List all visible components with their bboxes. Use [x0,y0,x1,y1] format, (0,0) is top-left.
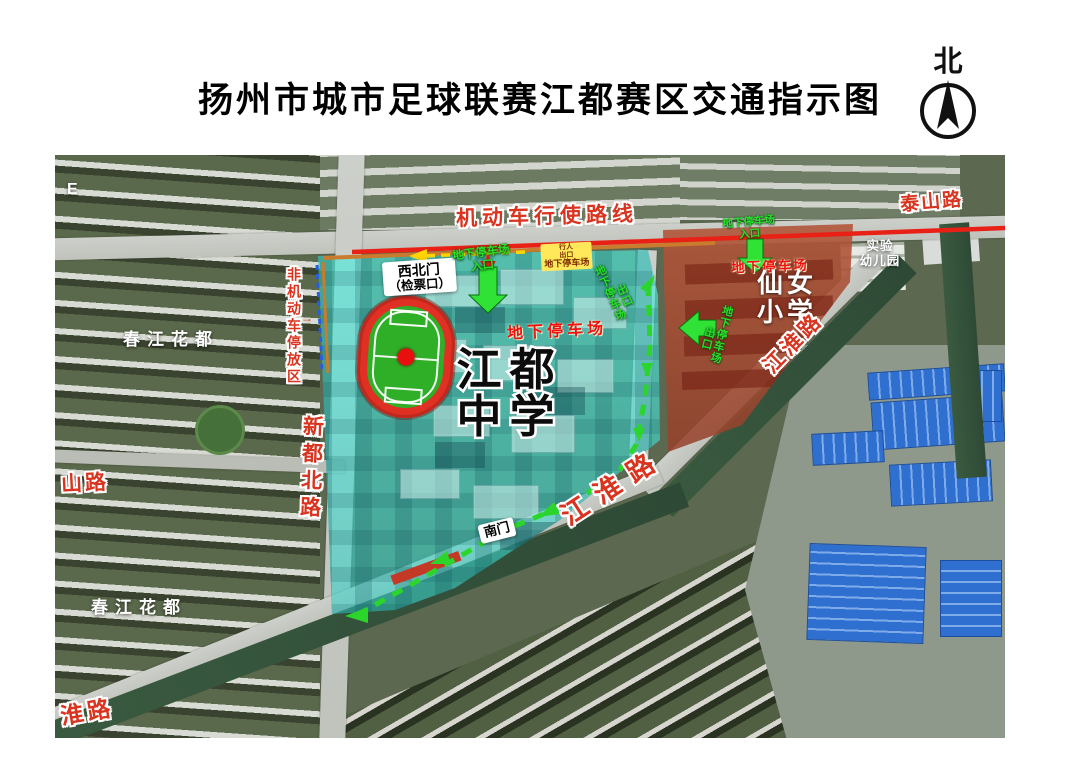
north-label: 北 [908,48,988,77]
chunjiang-label-lower: 春江花都 [91,593,187,618]
compass-icon [915,77,981,143]
kindergarten-line1: 实验 [845,239,915,254]
jiangdu-school-label: 江都 中学 [427,347,592,441]
chunjiang-label-upper: 春江花都 [123,325,219,350]
page: { "title": "扬州市城市足球联赛江都赛区交通指示图", "compas… [0,0,1080,764]
park-circle [195,405,245,455]
road-label-shan-partial: 山路 [60,466,110,498]
campus-building [400,469,460,499]
campus-building [473,485,539,519]
xiannu-line1: 仙女 [731,269,843,298]
factory-roof [811,430,885,466]
nonmotor-area-arrow: → [301,311,313,325]
pedestrian-exit-label: 行人 出口 地下停车场 [540,242,592,272]
jiangdu-line1: 江都 [427,347,592,394]
road-label-xindu-north: 新都北路 [293,415,327,524]
road-label-taishan: 泰山路 [899,184,964,216]
parking-entrance-label-xiannu: 地下停车场 入口 [722,215,776,243]
northwest-gate-label: 西北门 （检票口） [382,258,457,297]
edge-partial-label: E [67,181,78,199]
kindergarten-label: 实验 幼儿园 [845,239,915,269]
factory-roof [940,560,1002,637]
satellite-map: 机动车行使路线 泰山路 西北门 （检票口） 地下停车场 入口 行人 出口 地下停… [55,155,1005,738]
northwest-gate-line2: （检票口） [388,276,451,295]
north-indicator: 北 [908,48,988,148]
motor-route-label: 机动车行使路线 [427,197,668,233]
penalty-box-bottom [384,387,423,406]
xiannu-school-label: 仙女 小学 [731,269,843,327]
campus-building-dark [455,307,505,333]
penalty-box-top [389,309,428,328]
pedestrian-line3: 地下停车场 [544,258,589,270]
campus-building [500,269,564,305]
nonmotor-area-label: 非机动车停放区 [284,267,304,386]
jiangdu-line2: 中学 [427,394,592,441]
kindergarten-line2: 幼儿园 [845,254,915,269]
factory-roof [806,543,926,644]
campus-building-dark [435,442,485,468]
